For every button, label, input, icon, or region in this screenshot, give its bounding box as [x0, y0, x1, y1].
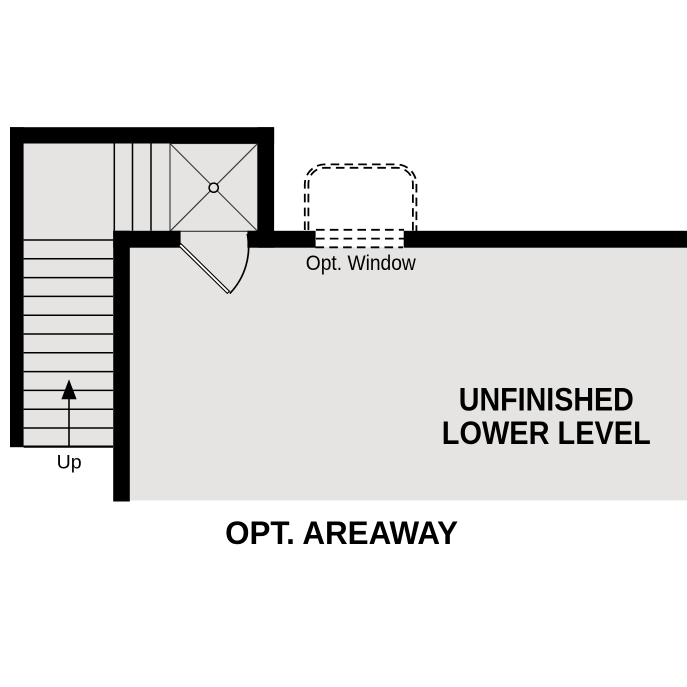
svg-text:Opt. Window: Opt. Window — [306, 251, 417, 275]
svg-text:OPT. AREAWAY: OPT. AREAWAY — [225, 514, 458, 551]
svg-text:Up: Up — [57, 452, 82, 474]
svg-text:LOWER LEVEL: LOWER LEVEL — [442, 415, 651, 451]
svg-text:UNFINISHED: UNFINISHED — [459, 381, 634, 417]
